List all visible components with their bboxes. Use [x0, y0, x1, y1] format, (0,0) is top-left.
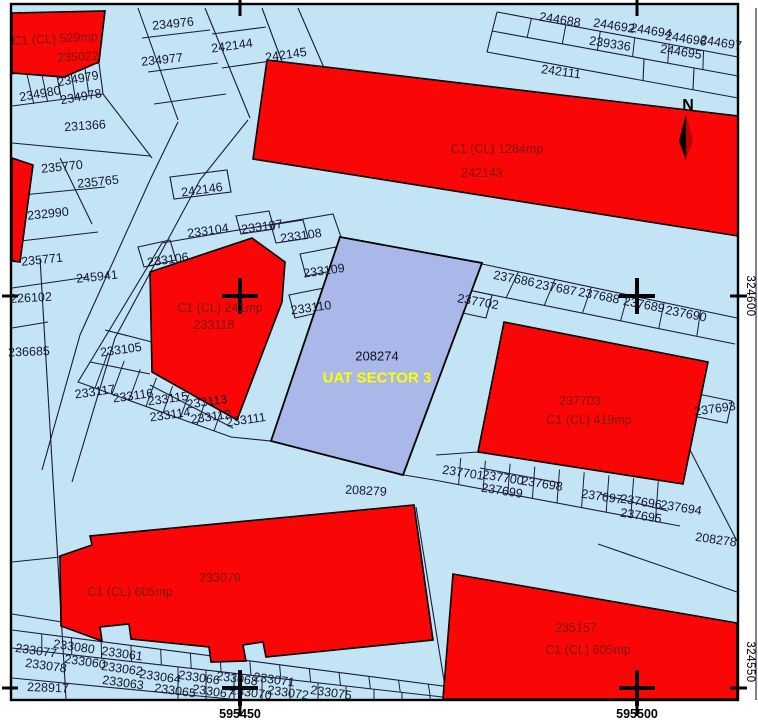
- north-label: N: [682, 97, 694, 115]
- map-canvas: [0, 0, 758, 720]
- cadastral-map: N C1 (CL) 529mp2350222349762421442421452…: [0, 0, 758, 720]
